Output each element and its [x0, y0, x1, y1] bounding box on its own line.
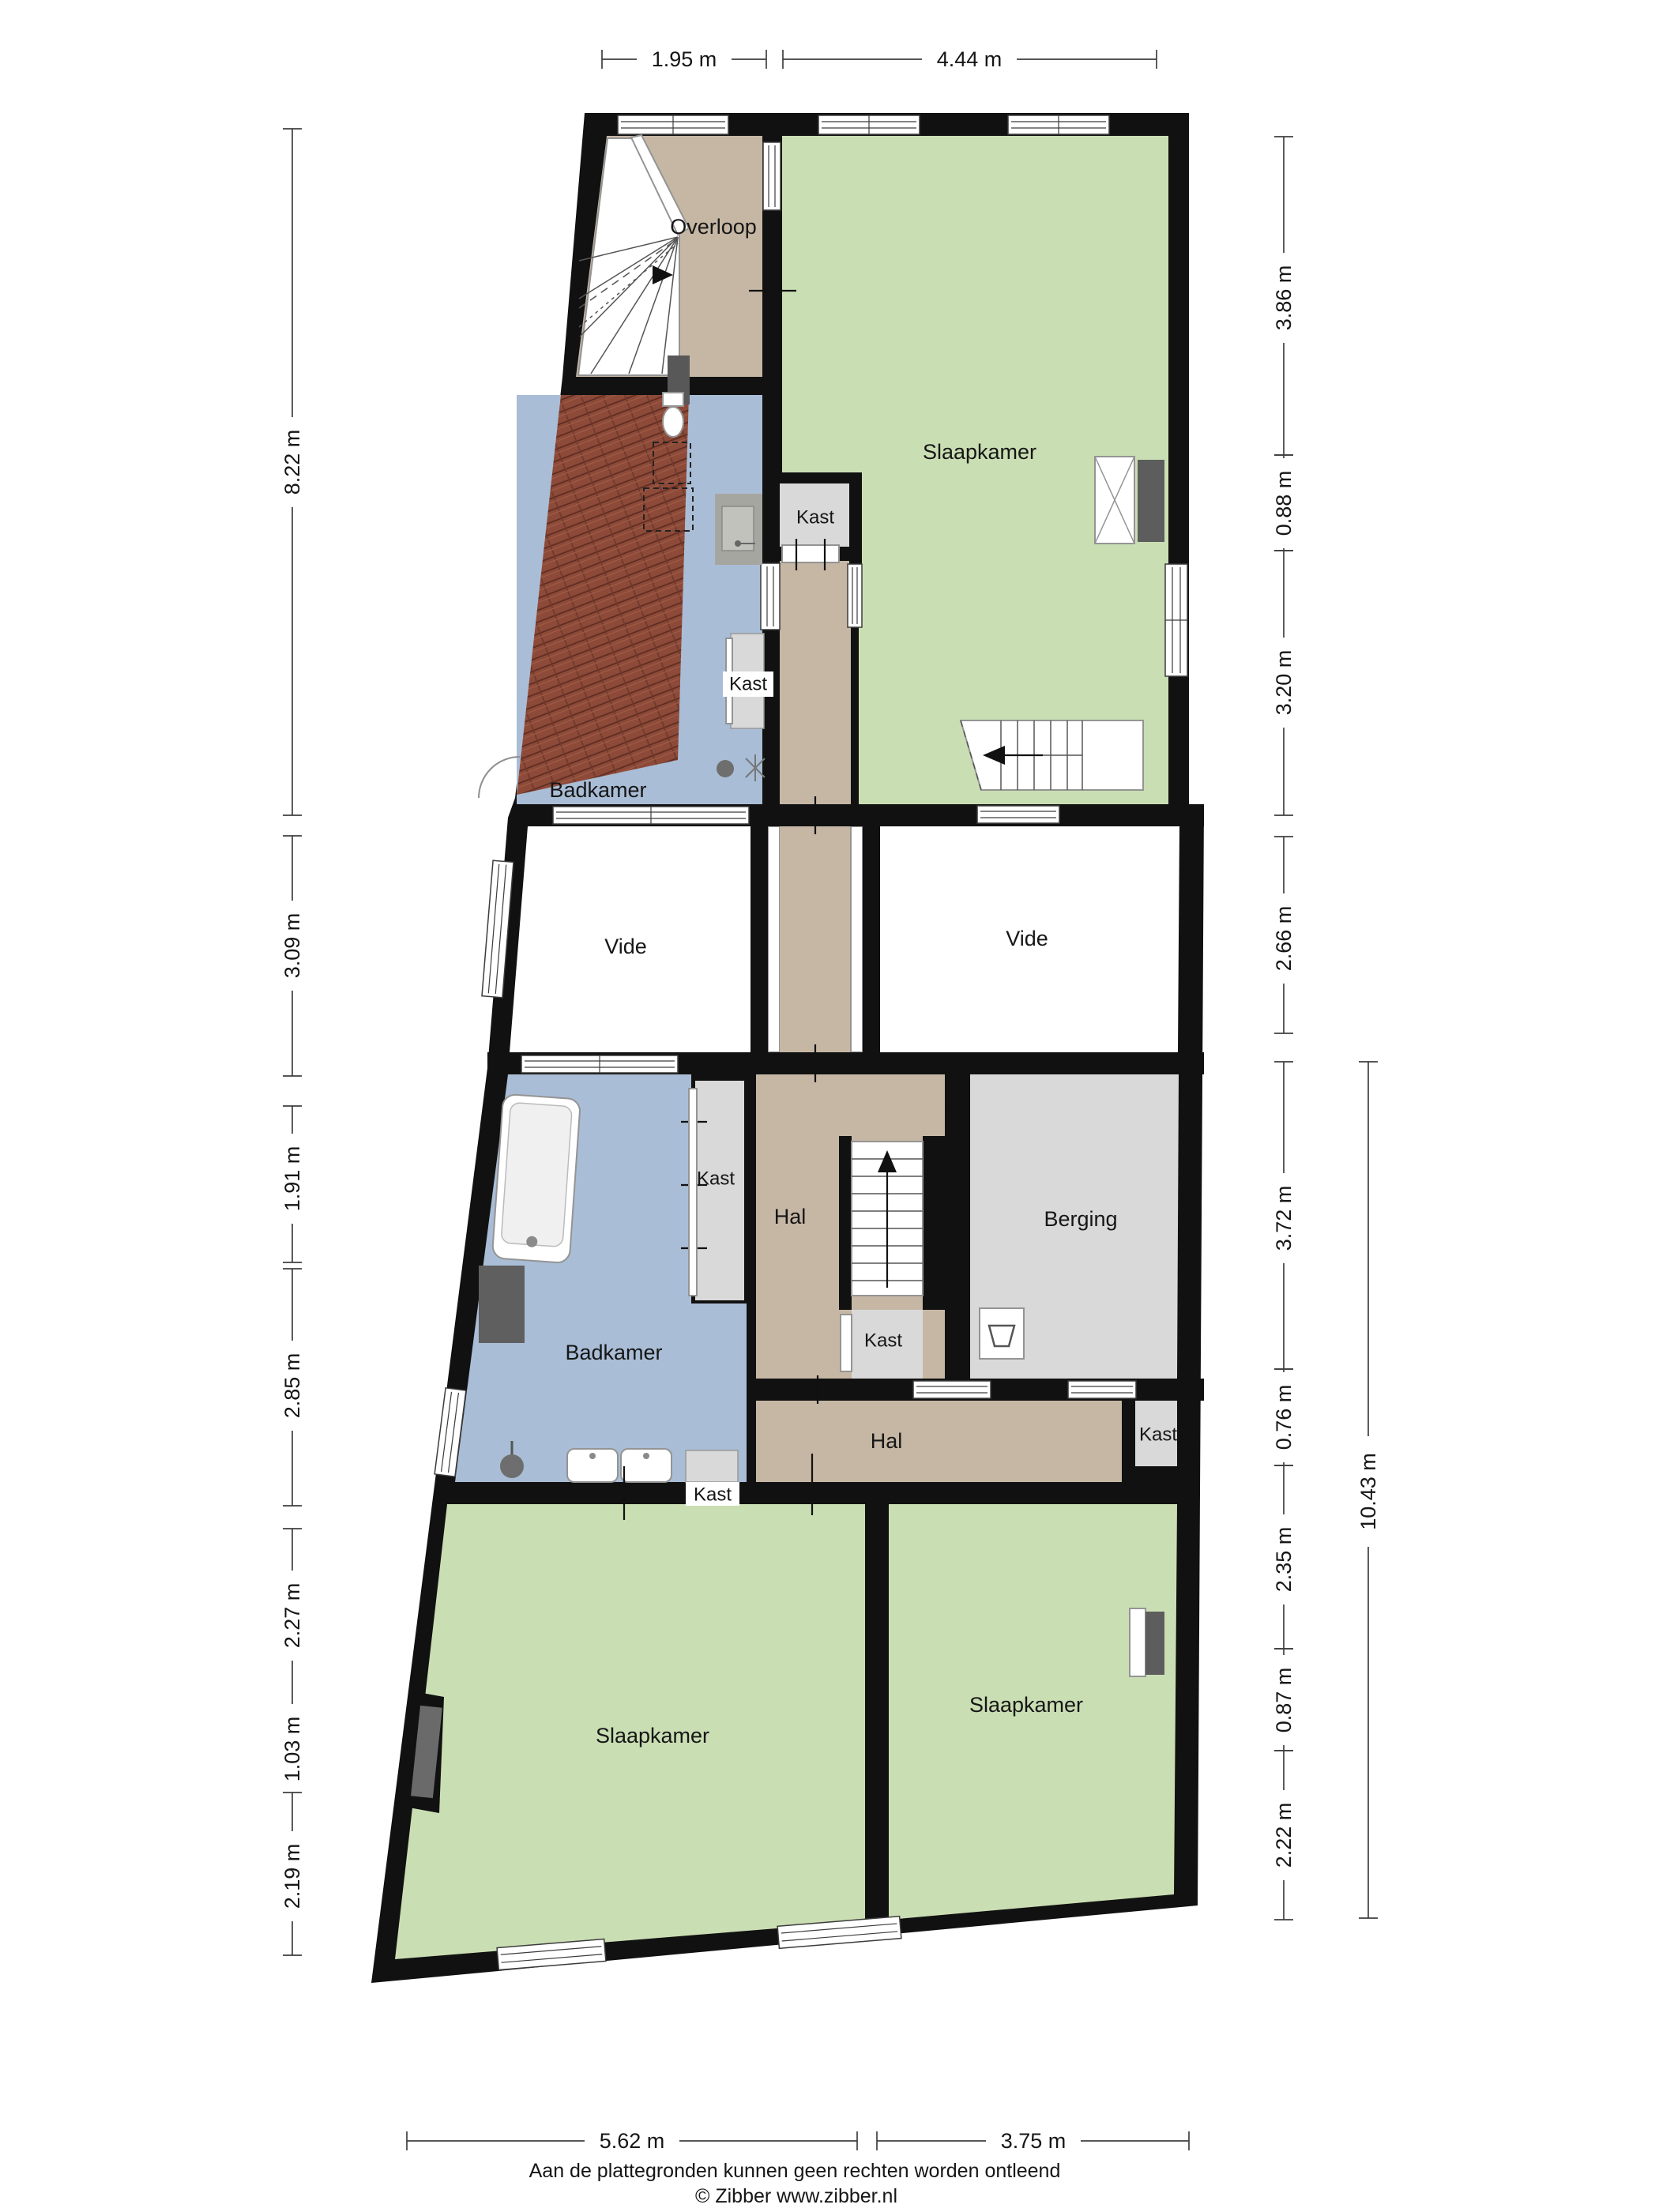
dim-bottom-0: 5.62 m	[407, 2127, 857, 2155]
window	[553, 807, 749, 824]
window	[761, 563, 780, 630]
sink-counter	[715, 494, 762, 565]
svg-text:1.95 m: 1.95 m	[652, 47, 717, 71]
staircase-hal	[852, 1142, 923, 1296]
room-label-kast-hal-low: Kast	[1139, 1424, 1177, 1446]
svg-text:3.86 m: 3.86 m	[1272, 265, 1296, 331]
room-label-overloop: Overloop	[670, 215, 757, 239]
dim-right-7: 0.87 m	[1266, 1649, 1301, 1751]
dim-top-1: 4.44 m	[783, 45, 1157, 73]
room-label-kast-badkamer-low: Kast	[694, 1484, 732, 1506]
room-label-kast-under-stairs: Kast	[864, 1330, 902, 1352]
window	[618, 115, 728, 134]
hall-bridge	[780, 826, 851, 1052]
dark-cabinet	[479, 1266, 525, 1343]
svg-text:5.62 m: 5.62 m	[600, 2129, 665, 2153]
room-label-badkamer-top: Badkamer	[549, 778, 646, 802]
dim-left-0: 8.22 m	[275, 129, 310, 815]
dim-right-0: 3.86 m	[1266, 137, 1301, 455]
room-label-hal-mid: Hal	[774, 1205, 807, 1228]
dim-left-2: 1.91 m	[275, 1106, 310, 1262]
room-label-slaapkamer-top: Slaapkamer	[923, 440, 1036, 464]
vide-railing-right	[851, 826, 863, 1052]
svg-text:8.22 m: 8.22 m	[280, 430, 304, 495]
sink	[621, 1449, 671, 1482]
dim-right-2: 3.20 m	[1266, 551, 1301, 815]
svg-text:4.44 m: 4.44 m	[937, 47, 1003, 71]
window	[818, 115, 920, 134]
svg-text:3.75 m: 3.75 m	[1001, 2129, 1066, 2153]
svg-text:2.35 m: 2.35 m	[1272, 1527, 1296, 1593]
dim-left-4: 2.27 m	[275, 1529, 310, 1706]
room-kast-mid	[695, 1081, 744, 1300]
room-label-slaapkamer-right: Slaapkamer	[969, 1693, 1083, 1717]
window	[1068, 1381, 1136, 1398]
window	[763, 142, 781, 210]
svg-text:0.88 m: 0.88 m	[1272, 471, 1296, 536]
dim-left-1: 3.09 m	[275, 836, 310, 1076]
room-label-slaapkamer-left: Slaapkamer	[596, 1724, 709, 1747]
dim-right-1: 0.88 m	[1266, 455, 1301, 551]
dim-right-total: 10.43 m	[1351, 1062, 1386, 1918]
dim-right-6: 2.35 m	[1266, 1465, 1301, 1649]
dim-left-3: 2.85 m	[275, 1269, 310, 1506]
staircase-slaapkamer-top	[961, 720, 1143, 790]
svg-text:1.03 m: 1.03 m	[280, 1717, 304, 1782]
room-label-kast-mid: Kast	[697, 1168, 735, 1190]
footer-credit: © Zibber www.zibber.nl	[695, 2185, 897, 2207]
room-label-kast-top: Kast	[796, 507, 834, 529]
bathtub	[492, 1094, 581, 1263]
building: Overloop Slaapkamer Kast Kast Badkamer V…	[371, 113, 1204, 1983]
floor-plan-canvas: Overloop Slaapkamer Kast Kast Badkamer V…	[0, 0, 1659, 2212]
room-label-vide-right: Vide	[1006, 927, 1048, 950]
dim-left-6: 2.19 m	[275, 1793, 310, 1955]
washing-machine	[980, 1308, 1024, 1359]
svg-text:3.72 m: 3.72 m	[1272, 1186, 1296, 1251]
radiator	[1095, 457, 1164, 544]
window	[1008, 115, 1109, 134]
room-label-hal-low: Hal	[871, 1429, 903, 1453]
room-label-berging: Berging	[1044, 1207, 1117, 1231]
room-label-badkamer-low: Badkamer	[565, 1341, 662, 1364]
svg-text:3.20 m: 3.20 m	[1272, 650, 1296, 716]
svg-text:2.22 m: 2.22 m	[1272, 1803, 1296, 1868]
dim-right-4: 3.72 m	[1266, 1062, 1301, 1369]
footer-disclaimer: Aan de plattegronden kunnen geen rechten…	[529, 2160, 1061, 2182]
svg-text:0.87 m: 0.87 m	[1272, 1668, 1296, 1733]
svg-text:1.91 m: 1.91 m	[280, 1146, 304, 1212]
window	[1165, 564, 1187, 676]
toilet	[663, 393, 683, 437]
footer: Aan de plattegronden kunnen geen rechten…	[529, 2160, 1061, 2207]
door-arc	[479, 757, 520, 798]
radiator	[1130, 1608, 1164, 1676]
svg-text:10.43 m: 10.43 m	[1356, 1453, 1380, 1530]
sink	[567, 1449, 618, 1482]
room-label-kast-badkamer-top: Kast	[729, 674, 767, 695]
svg-text:2.19 m: 2.19 m	[280, 1844, 304, 1909]
dim-left-5: 1.03 m	[275, 1704, 310, 1794]
vide-railing-left	[768, 826, 780, 1052]
svg-text:2.85 m: 2.85 m	[280, 1353, 304, 1419]
svg-text:0.76 m: 0.76 m	[1272, 1385, 1296, 1450]
closet-box-low	[686, 1450, 738, 1482]
window	[521, 1055, 678, 1073]
window	[977, 806, 1059, 823]
room-hal-low	[750, 1401, 1122, 1482]
room-label-vide-left: Vide	[604, 935, 647, 958]
dim-top-0: 1.95 m	[602, 45, 766, 73]
svg-text:3.09 m: 3.09 m	[280, 913, 304, 979]
dim-right-8: 2.22 m	[1266, 1751, 1301, 1920]
hall-strip-top	[780, 561, 851, 804]
dim-right-5: 0.76 m	[1266, 1369, 1301, 1465]
floor-plan-page: Overloop Slaapkamer Kast Kast Badkamer V…	[0, 0, 1659, 2212]
svg-text:2.66 m: 2.66 m	[1272, 906, 1296, 972]
dim-bottom-1: 3.75 m	[877, 2127, 1189, 2155]
svg-text:2.27 m: 2.27 m	[280, 1583, 304, 1649]
window	[913, 1381, 991, 1398]
dim-right-3: 2.66 m	[1266, 837, 1301, 1033]
window	[848, 564, 862, 627]
